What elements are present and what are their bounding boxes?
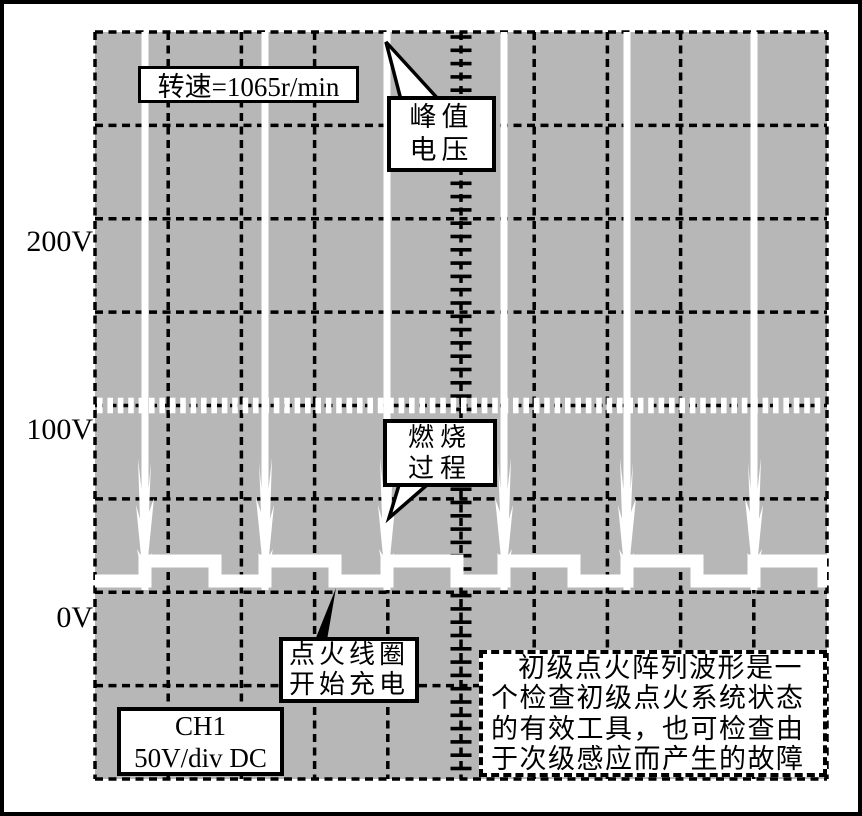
channel-settings-box: CH1 50V/div DC — [117, 707, 284, 776]
coil-charging-callout: 点火线圈 开始充电 — [279, 637, 419, 703]
peak-voltage-line1: 峰值 — [410, 101, 474, 134]
y-axis-label-100v: 100V — [8, 412, 93, 448]
combustion-line2: 过程 — [408, 453, 472, 484]
note-line3: 的有效工具，也可检查由 — [491, 714, 805, 745]
peak-voltage-callout: 峰值 电压 — [387, 96, 496, 172]
combustion-callout: 燃烧 过程 — [383, 419, 497, 487]
rpm-label: 转速=1065r/min — [158, 65, 340, 104]
coil-charging-line2: 开始充电 — [289, 670, 409, 700]
coil-charging-line1: 点火线圈 — [289, 640, 409, 670]
ignition-waveform-figure: 200V 100V 0V 转速=1065r/min 峰值 电压 燃烧 过程 点火… — [0, 0, 862, 816]
y-axis-label-0v: 0V — [8, 600, 93, 636]
channel-name: CH1 — [175, 710, 226, 742]
note-line1: 初级点火阵列波形是一 — [491, 653, 803, 684]
rpm-label-box: 转速=1065r/min — [138, 66, 359, 103]
note-text-box: 初级点火阵列波形是一 个检查初级点火系统状态 的有效工具，也可检查由 于次级感应… — [479, 650, 827, 777]
channel-scale: 50V/div DC — [134, 742, 267, 774]
y-axis-label-200v: 200V — [8, 224, 93, 260]
combustion-line1: 燃烧 — [408, 422, 472, 453]
note-line4: 于次级感应而产生的故障 — [491, 744, 805, 775]
peak-voltage-line2: 电压 — [410, 134, 474, 167]
note-line2: 个检查初级点火系统状态 — [491, 683, 805, 714]
